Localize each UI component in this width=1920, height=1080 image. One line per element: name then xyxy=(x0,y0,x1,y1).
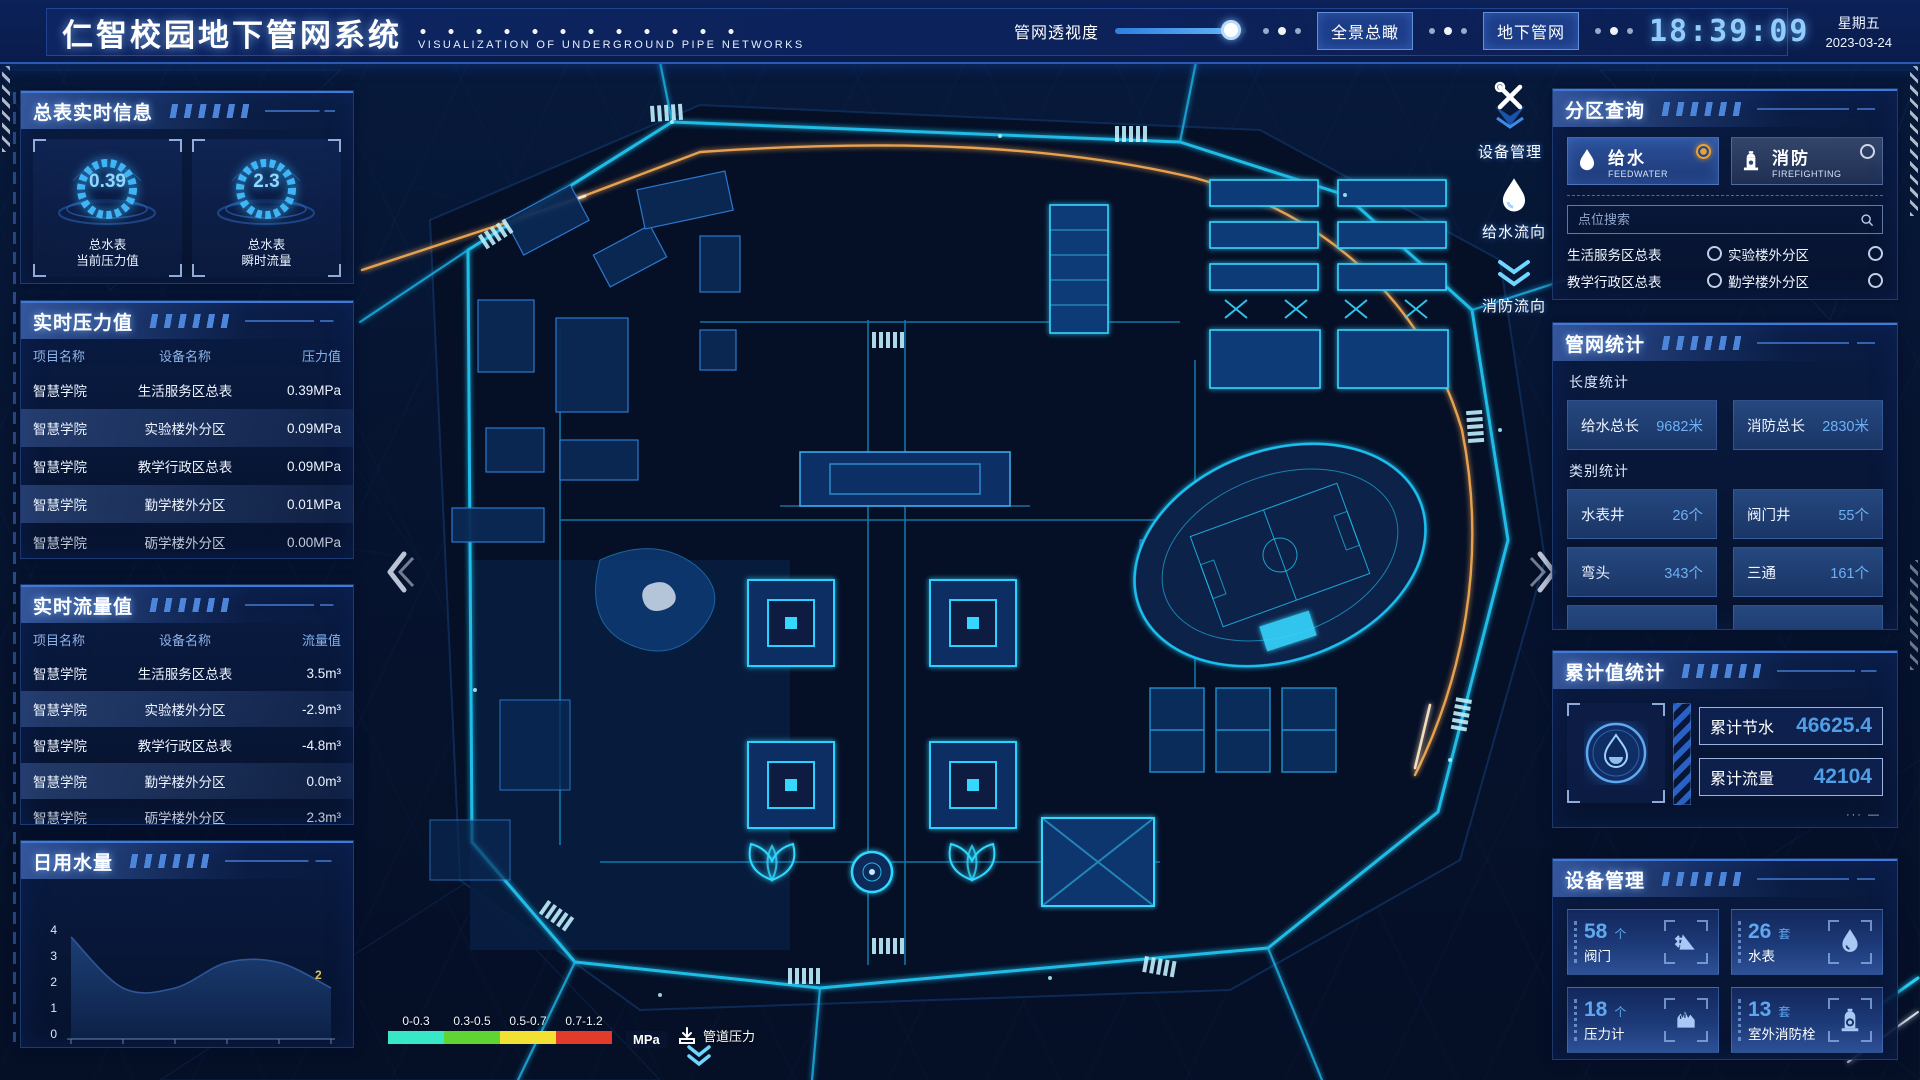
title-slashes-decoration xyxy=(1659,102,1743,116)
tab-feedwater[interactable]: 给水 FEEDWATER xyxy=(1567,137,1719,185)
realtime-flow-panel: 实时流量值 项目名称 设备名称 流量值 智慧学院生活服务区总表3.5m³ 智慧学… xyxy=(20,584,354,825)
gymnasium xyxy=(1042,818,1154,906)
y-tick: 4 xyxy=(39,923,57,937)
stat-chip: 阀门井55个 xyxy=(1733,489,1883,539)
panel-header: 总表实时信息 xyxy=(21,91,353,129)
device-card-pressure-gauges[interactable]: 18个 压力计 xyxy=(1567,987,1719,1053)
cumulative-stats-panel: 累计值统计 累计节水 46625.4 xyxy=(1552,650,1898,828)
zone-item-radio[interactable] xyxy=(1707,246,1722,261)
table-row[interactable]: 智慧学院教学行政区总表0.09MPa xyxy=(21,447,353,485)
stat-chip: 水表井26个 xyxy=(1567,489,1717,539)
table-row[interactable]: 智慧学院生活服务区总表3.5m³ xyxy=(21,655,353,691)
legend-range: 0.5-0.7 xyxy=(500,1014,556,1028)
title-line-decoration xyxy=(245,320,341,322)
panel-title: 分区查询 xyxy=(1565,96,1645,123)
cumulative-saved-water: 累计节水 46625.4 xyxy=(1699,707,1883,745)
gauge-label: 总水表 当前压力值 xyxy=(33,237,182,269)
table-row[interactable]: 智慧学院生活服务区总表0.39MPa xyxy=(21,371,353,409)
main-hall xyxy=(780,452,1030,506)
panel-header: 实时压力值 xyxy=(21,301,353,339)
app-title: 仁智校园地下管网系统 xyxy=(62,10,402,55)
fire-flow-map-tool[interactable]: 消防流向 xyxy=(1482,258,1546,316)
stat-chip-clipped xyxy=(1733,605,1883,630)
daily-usage-chart: 4 3 2 1 0 2 13:16 13:17 13:17 13:22 xyxy=(21,879,353,1039)
waterdrop-emblem-icon xyxy=(1584,721,1648,785)
point-search-box[interactable] xyxy=(1567,205,1883,234)
title-line-decoration xyxy=(1757,342,1885,344)
panel-header: 分区查询 xyxy=(1553,89,1897,127)
tab-radio[interactable] xyxy=(1860,144,1875,159)
water-meter-icon xyxy=(1828,920,1872,964)
panel-title: 实时流量值 xyxy=(33,592,133,619)
title-dots-decoration xyxy=(418,28,748,35)
hazard-stripe-decoration xyxy=(1910,66,1918,216)
stat-chip: 三通161个 xyxy=(1733,547,1883,597)
daily-usage-plot xyxy=(65,927,337,1048)
table-header: 项目名称 设备名称 流量值 xyxy=(21,623,353,655)
legend-unit: MPa xyxy=(626,1031,667,1048)
waterdrop-icon xyxy=(1576,148,1598,174)
pipe-pressure-toggle[interactable]: 管道压力 xyxy=(678,1026,755,1045)
tab-sublabel: FEEDWATER xyxy=(1608,169,1668,179)
zone-point-list: 生活服务区总表 实验楼外分区 教学行政区总表 勤学楼外分区 砺学楼外分区 宿舍区… xyxy=(1567,240,1883,300)
point-search-input[interactable] xyxy=(1576,211,1854,228)
panel-title: 日用水量 xyxy=(33,848,113,875)
panel-header: 设备管理 xyxy=(1553,859,1897,897)
pressure-gauge-icon xyxy=(1664,998,1708,1042)
tall-dorm-slab xyxy=(1050,205,1108,333)
pipe-opacity-slider-thumb[interactable] xyxy=(1221,20,1241,40)
table-row[interactable]: 智慧学院勤学楼外分区0.01MPa xyxy=(21,485,353,523)
title-slashes-decoration xyxy=(147,598,231,612)
hatch-stripe-decoration xyxy=(1673,703,1691,805)
title-slashes-decoration xyxy=(1679,664,1763,678)
stat-chip: 给水总长9682米 xyxy=(1567,400,1717,450)
tab-firefighting[interactable]: 消防 FIREFIGHTING xyxy=(1731,137,1883,185)
legend-range: 0-0.3 xyxy=(388,1014,444,1028)
title-slashes-decoration xyxy=(1659,336,1743,350)
valve-icon xyxy=(1664,920,1708,964)
tab-radio-selected[interactable] xyxy=(1696,144,1711,159)
title-slashes-decoration xyxy=(147,314,231,328)
basketball-courts xyxy=(1150,688,1336,772)
zone-query-panel: 分区查询 给水 FEEDWATER xyxy=(1552,88,1898,300)
panel-title: 实时压力值 xyxy=(33,308,133,335)
ellipsis-decoration: ··· — xyxy=(1846,809,1881,821)
panel-header: 累计值统计 xyxy=(1553,651,1897,689)
clock-weekday: 星期五 xyxy=(1838,13,1880,33)
length-stats-label: 长度统计 xyxy=(1569,372,1881,392)
pipe-opacity-label: 管网透视度 xyxy=(1014,19,1099,43)
meter-realtime-panel: 总表实时信息 0.39 总水表 当前压力值 xyxy=(20,90,354,284)
dot-separator xyxy=(1263,27,1301,35)
device-card-outdoor-hydrants[interactable]: 13套 室外消防栓 xyxy=(1731,987,1883,1053)
title-line-decoration xyxy=(265,110,341,112)
table-row[interactable]: 智慧学院砺学楼外分区2.3m³ xyxy=(21,799,353,825)
stat-chip: 消防总长2830米 xyxy=(1733,400,1883,450)
device-management-panel: 设备管理 58个 阀门 26套 水表 xyxy=(1552,858,1898,1060)
device-card-water-meters[interactable]: 26套 水表 xyxy=(1731,909,1883,975)
app-subtitle: VISUALIZATION OF UNDERGROUND PIPE NETWOR… xyxy=(418,39,805,51)
y-tick: 3 xyxy=(39,949,57,963)
legend-down-chevron[interactable] xyxy=(684,1044,714,1070)
underground-pipes-button[interactable]: 地下管网 xyxy=(1483,12,1579,50)
zone-item[interactable]: 实验楼外分区 xyxy=(1728,244,1857,264)
stat-chip-clipped xyxy=(1567,605,1717,630)
gauge-label: 总水表 瞬时流量 xyxy=(192,237,341,269)
table-row[interactable]: 智慧学院实验楼外分区-2.9m³ xyxy=(21,691,353,727)
gauge-value: 2.3 xyxy=(192,171,341,193)
gauge-value: 0.39 xyxy=(33,171,182,193)
title-line-decoration xyxy=(225,860,341,862)
tab-label: 给水 xyxy=(1608,144,1668,169)
flow-gauge-card: 2.3 总水表 瞬时流量 xyxy=(192,139,341,277)
clock-time: 18:39:09 xyxy=(1649,14,1810,49)
tab-sublabel: FIREFIGHTING xyxy=(1772,169,1842,179)
pipe-network-stats-panel: 管网统计 长度统计 给水总长9682米 消防总长2830米 类别统计 水表井26… xyxy=(1552,322,1898,630)
zone-item[interactable]: 勤学楼外分区 xyxy=(1728,271,1857,291)
y-tick: 1 xyxy=(39,1001,57,1015)
hydrant-icon xyxy=(1828,998,1872,1042)
device-card-valves[interactable]: 58个 阀门 xyxy=(1567,909,1719,975)
zone-item[interactable]: 砺学楼外分区 xyxy=(1567,298,1696,301)
hazard-stripe-decoration xyxy=(2,66,10,152)
tab-label: 消防 xyxy=(1772,144,1842,169)
pressure-gauge-card: 0.39 总水表 当前压力值 xyxy=(33,139,182,277)
dot-separator xyxy=(1595,27,1633,35)
water-emblem xyxy=(1567,703,1665,803)
panel-header: 日用水量 xyxy=(21,841,353,879)
dashed-divider xyxy=(1567,195,1883,196)
category-stats-label: 类别统计 xyxy=(1569,461,1881,481)
device-manage-map-tool[interactable]: 设备管理 xyxy=(1478,80,1542,162)
dashboard-screen: 仁智校园地下管网系统 VISUALIZATION OF UNDERGROUND … xyxy=(0,0,1920,1080)
pressure-legend: 0-0.3 0.3-0.5 0.5-0.7 0.7-1.2 MPa xyxy=(388,1014,612,1044)
dot-separator xyxy=(1429,27,1467,35)
title-slashes-decoration xyxy=(1659,872,1743,886)
feedwater-flow-map-tool[interactable]: 给水流向 xyxy=(1482,176,1546,242)
map-page-left-chevron[interactable] xyxy=(382,548,416,596)
zone-item[interactable]: 宿舍区泵房 xyxy=(1728,298,1857,301)
title-slashes-decoration xyxy=(167,104,251,118)
search-icon[interactable] xyxy=(1860,213,1874,227)
clock-date-value: 2023-03-24 xyxy=(1826,35,1893,50)
panel-header: 管网统计 xyxy=(1553,323,1897,361)
legend-range: 0.7-1.2 xyxy=(556,1014,612,1028)
last-value-label: 2 xyxy=(315,968,322,982)
title-line-decoration xyxy=(245,604,341,606)
title-line-decoration xyxy=(1757,878,1885,880)
central-plaza xyxy=(852,852,892,892)
y-tick: 2 xyxy=(39,975,57,989)
panel-title: 设备管理 xyxy=(1565,866,1645,893)
zone-item-radio[interactable] xyxy=(1868,246,1883,261)
title-line-decoration xyxy=(1777,670,1885,672)
panel-title: 管网统计 xyxy=(1565,330,1645,357)
panel-title: 累计值统计 xyxy=(1565,658,1665,685)
hydrant-icon xyxy=(1740,149,1762,173)
table-row[interactable]: 智慧学院实验楼外分区0.09MPa xyxy=(21,409,353,447)
tools-icon xyxy=(1487,80,1533,138)
table-row[interactable]: 智慧学院教学行政区总表-4.8m³ xyxy=(21,727,353,763)
hazard-stripe-decoration xyxy=(1910,560,1918,670)
y-tick: 0 xyxy=(39,1027,57,1041)
table-header: 项目名称 设备名称 压力值 xyxy=(21,339,353,371)
realtime-pressure-panel: 实时压力值 项目名称 设备名称 压力值 智慧学院生活服务区总表0.39MPa 智… xyxy=(20,300,354,559)
legend-range: 0.3-0.5 xyxy=(444,1014,500,1028)
left-scroll-rail-decoration xyxy=(13,92,16,1042)
title-line-decoration xyxy=(1757,108,1885,110)
zone-item-radio[interactable] xyxy=(1707,273,1722,288)
daily-water-usage-panel: 日用水量 4 3 2 1 0 2 13:16 xyxy=(20,840,354,1048)
panel-header: 实时流量值 xyxy=(21,585,353,623)
title-slashes-decoration xyxy=(127,854,211,868)
legend-color-bar xyxy=(388,1031,612,1044)
cumulative-flow: 累计流量 42104 xyxy=(1699,758,1883,796)
zone-item[interactable]: 生活服务区总表 xyxy=(1567,244,1696,264)
panel-title: 总表实时信息 xyxy=(33,98,153,125)
table-row[interactable]: 智慧学院勤学楼外分区0.0m³ xyxy=(21,763,353,799)
waterdrop-icon xyxy=(1497,176,1531,218)
panorama-view-button[interactable]: 全景总瞰 xyxy=(1317,12,1413,50)
zone-item[interactable]: 教学行政区总表 xyxy=(1567,271,1696,291)
zone-item-radio[interactable] xyxy=(1868,273,1883,288)
header-bar: 仁智校园地下管网系统 VISUALIZATION OF UNDERGROUND … xyxy=(0,0,1920,64)
pipe-opacity-slider[interactable] xyxy=(1115,22,1247,40)
pipe-pressure-icon xyxy=(678,1027,696,1045)
flow-arrows-icon xyxy=(1494,258,1534,292)
pipe-opacity-slider-fill xyxy=(1115,28,1231,34)
stat-chip: 弯头343个 xyxy=(1567,547,1717,597)
clock-date: 星期五 2023-03-24 xyxy=(1826,13,1893,50)
table-row[interactable]: 智慧学院砺学楼外分区0.00MPa xyxy=(21,523,353,559)
